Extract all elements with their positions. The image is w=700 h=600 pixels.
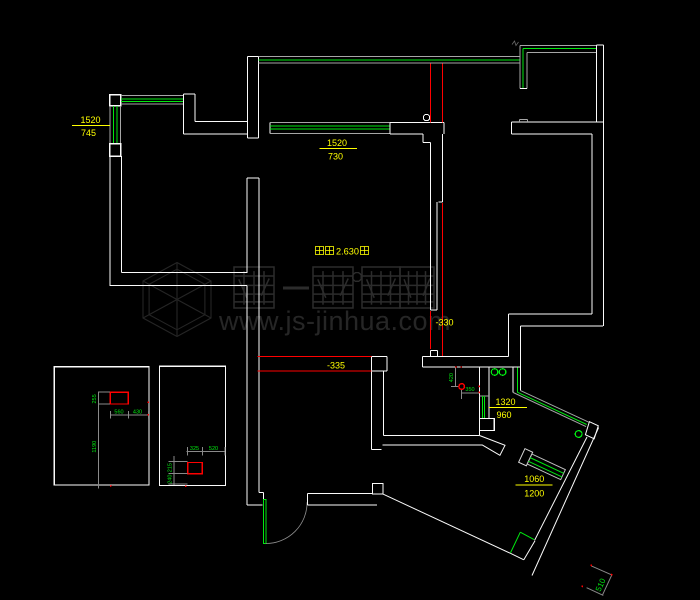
svg-text:325: 325 xyxy=(190,446,199,452)
svg-text:1200: 1200 xyxy=(524,488,544,498)
svg-text:-330: -330 xyxy=(436,317,454,327)
svg-text:1520: 1520 xyxy=(327,138,347,148)
svg-text:960: 960 xyxy=(497,410,512,420)
svg-text:1060: 1060 xyxy=(524,474,544,484)
svg-text:1520: 1520 xyxy=(81,115,101,125)
svg-text:2.630: 2.630 xyxy=(336,247,359,257)
svg-text:240: 240 xyxy=(167,475,173,484)
svg-text:350: 350 xyxy=(465,387,474,393)
svg-text:420: 420 xyxy=(449,373,455,382)
svg-text:1320: 1320 xyxy=(496,397,516,407)
svg-text:1190: 1190 xyxy=(92,441,98,453)
svg-text:255: 255 xyxy=(92,394,98,403)
svg-text:730: 730 xyxy=(328,152,343,162)
svg-text:560: 560 xyxy=(114,409,123,415)
svg-text:430: 430 xyxy=(133,409,142,415)
svg-text:745: 745 xyxy=(81,128,96,138)
svg-text:215: 215 xyxy=(167,463,173,472)
svg-text:520: 520 xyxy=(209,446,218,452)
svg-text:-335: -335 xyxy=(327,360,345,370)
svg-text:www.js-jinhua.com: www.js-jinhua.com xyxy=(218,306,451,336)
